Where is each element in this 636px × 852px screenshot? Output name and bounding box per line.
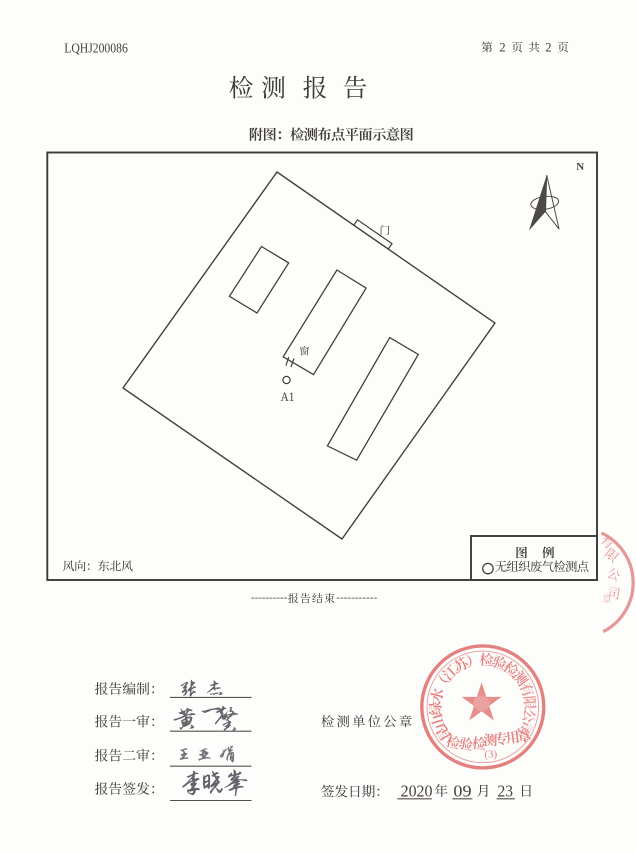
svg-text:2: 2	[545, 41, 551, 55]
svg-text:LQHJ200086: LQHJ200086	[64, 41, 128, 56]
svg-text:2020: 2020	[401, 781, 433, 800]
svg-text:A1: A1	[281, 389, 295, 404]
svg-text:-----------: -----------	[336, 592, 377, 604]
svg-text:N: N	[576, 161, 584, 173]
svg-text:2: 2	[499, 41, 505, 55]
svg-text:----------: ----------	[251, 592, 288, 604]
svg-text:(3): (3)	[484, 749, 497, 761]
svg-text:09: 09	[453, 781, 471, 800]
svg-text:23: 23	[498, 781, 514, 800]
